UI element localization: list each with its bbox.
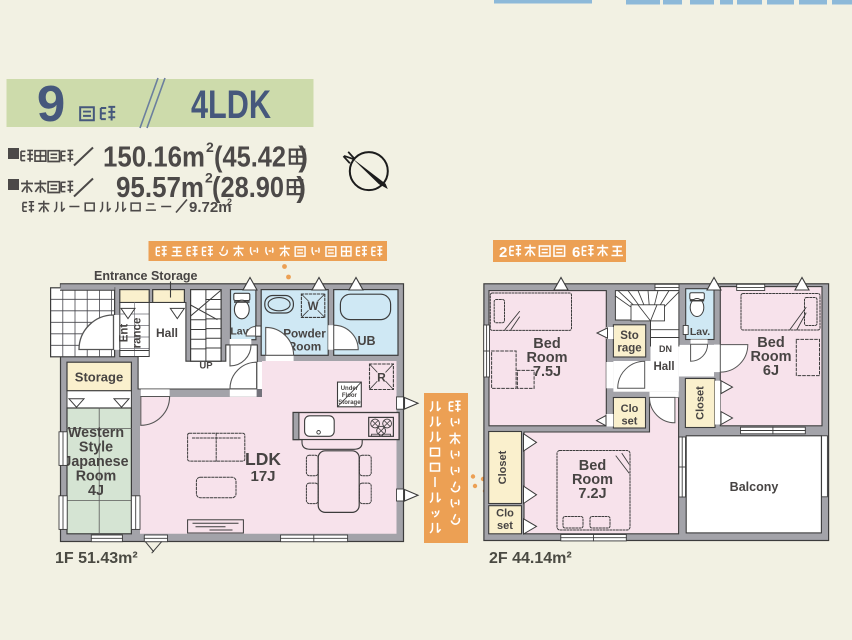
svg-text:Floor: Floor <box>342 393 358 399</box>
svg-text:Clo: Clo <box>621 403 639 415</box>
svg-text:2: 2 <box>227 197 232 207</box>
svg-text:): ) <box>296 172 306 204</box>
svg-text:Closet: Closet <box>695 386 707 420</box>
svg-text:(45.42: (45.42 <box>214 142 286 174</box>
svg-text:rance: rance <box>132 318 144 349</box>
svg-text:Clo: Clo <box>496 508 514 520</box>
svg-text:9: 9 <box>37 75 65 132</box>
svg-text:Entrance Storage: Entrance Storage <box>94 269 198 283</box>
svg-text:2: 2 <box>206 139 214 155</box>
svg-text:7.2J: 7.2J <box>578 486 606 502</box>
svg-text:DN: DN <box>659 344 672 354</box>
svg-text:7.5J: 7.5J <box>533 364 561 380</box>
svg-text:Powder: Powder <box>283 327 326 341</box>
svg-text:Sto: Sto <box>620 330 639 342</box>
svg-text:1F 51.43m²: 1F 51.43m² <box>55 550 138 567</box>
svg-text:9.72m: 9.72m <box>189 199 232 216</box>
svg-text:Storage: Storage <box>75 370 123 385</box>
svg-text:Hall: Hall <box>156 326 178 340</box>
svg-text:UP: UP <box>199 361 213 372</box>
svg-text:4LDK: 4LDK <box>191 83 271 127</box>
svg-text:LDK: LDK <box>245 449 281 469</box>
svg-text:Closet: Closet <box>497 450 509 484</box>
svg-text:17J: 17J <box>250 468 275 485</box>
svg-text:Ent: Ent <box>119 324 131 343</box>
svg-text:set: set <box>622 416 638 428</box>
svg-text:4J: 4J <box>88 483 104 499</box>
svg-text:Under: Under <box>341 386 359 392</box>
svg-text:set: set <box>497 520 513 532</box>
svg-text:6J: 6J <box>763 363 779 379</box>
svg-text:Balcony: Balcony <box>730 480 779 494</box>
svg-text:rage: rage <box>617 343 641 355</box>
svg-text:W: W <box>308 301 319 313</box>
svg-text:R: R <box>377 371 386 385</box>
svg-text:2: 2 <box>499 244 507 261</box>
svg-text:Lav.: Lav. <box>690 326 710 338</box>
svg-text:6: 6 <box>572 244 580 261</box>
svg-text:150.16m: 150.16m <box>103 142 205 174</box>
svg-text:Storage: Storage <box>338 400 361 406</box>
svg-text:): ) <box>298 142 308 174</box>
svg-text:Hall: Hall <box>653 361 674 373</box>
svg-text:UB: UB <box>357 334 375 348</box>
svg-text:2F 44.14m²: 2F 44.14m² <box>489 550 572 567</box>
